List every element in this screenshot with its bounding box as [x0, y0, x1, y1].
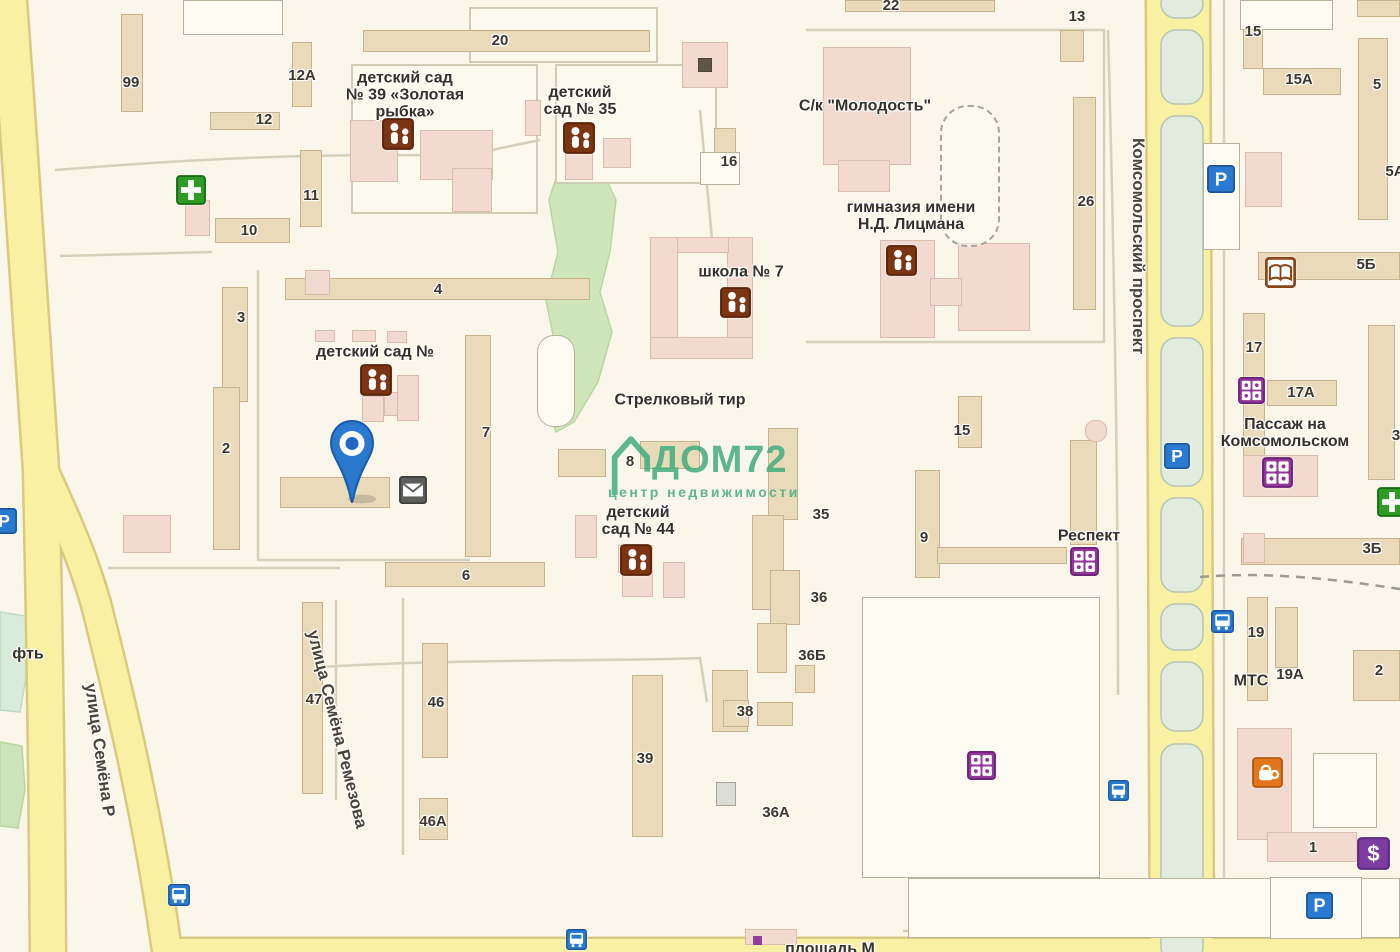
building-number: 36 — [811, 590, 828, 606]
building — [1245, 152, 1282, 207]
building — [1368, 325, 1395, 480]
building — [465, 335, 491, 557]
building-number: 6 — [462, 568, 470, 584]
svg-text:$: $ — [1367, 841, 1379, 866]
school-icon[interactable] — [886, 245, 917, 276]
building-number: 13 — [1069, 9, 1086, 25]
lane-path — [1108, 30, 1118, 695]
building-number: 7 — [482, 425, 490, 441]
lane-path — [1200, 575, 1400, 589]
watermark-subtitle: центр недвижимости — [608, 484, 800, 500]
building-number: 3 — [1392, 428, 1400, 444]
mail-icon[interactable] — [399, 476, 427, 504]
building — [937, 547, 1067, 564]
building-number: 1 — [1309, 840, 1317, 856]
poi-label: Респект — [1058, 527, 1120, 544]
svg-text:P: P — [0, 511, 10, 531]
building — [305, 270, 330, 295]
building-number: 16 — [721, 154, 738, 170]
building-number: 22 — [883, 0, 900, 14]
building — [757, 702, 793, 726]
building-number: 19 — [1248, 625, 1265, 641]
building — [213, 387, 240, 550]
parking-icon[interactable]: P — [1306, 892, 1333, 919]
school-icon[interactable] — [382, 118, 414, 150]
dollar-icon[interactable]: $ — [1357, 837, 1390, 870]
poi-label: детский сад № 44 — [602, 504, 675, 538]
building — [397, 375, 419, 421]
poi-label: С/к "Молодость" — [799, 97, 931, 114]
building — [930, 278, 962, 306]
pharmacy-icon[interactable] — [1377, 487, 1400, 517]
building-number: 99 — [123, 75, 140, 91]
location-pin[interactable] — [328, 418, 376, 511]
building-number: 38 — [737, 704, 754, 720]
building-number: 46 — [428, 695, 445, 711]
shop-icon[interactable] — [967, 751, 996, 780]
building — [452, 168, 492, 212]
building-number: 9 — [920, 530, 928, 546]
pharmacy-icon[interactable] — [176, 175, 206, 205]
poi-label: школа № 7 — [698, 263, 783, 280]
building — [677, 237, 729, 253]
building — [770, 570, 800, 625]
building — [958, 243, 1030, 331]
building — [1358, 38, 1388, 220]
building-number: 19А — [1276, 667, 1304, 683]
building-number: 17 — [1246, 340, 1263, 356]
building — [222, 287, 248, 402]
road-median — [1161, 604, 1203, 650]
poi-label: детский сад № 39 «Золотая рыбка» — [346, 69, 464, 120]
poi-label: детский сад № — [316, 343, 434, 360]
poi-label: МТС — [1234, 672, 1269, 689]
shop-icon[interactable] — [1262, 457, 1293, 488]
poi-label: площадь М — [785, 940, 875, 952]
building — [537, 335, 575, 427]
bus-icon[interactable] — [566, 929, 587, 950]
building-number: 35 — [813, 507, 830, 523]
building-number: 5А — [1385, 164, 1400, 180]
building — [663, 562, 685, 598]
building — [698, 58, 712, 72]
poi-label: гимназия имени Н.Д. Лицмана — [847, 199, 976, 233]
building-number: 2 — [1375, 663, 1383, 679]
building-number: 17А — [1287, 385, 1315, 401]
poi-label: Пассаж на Комсомольском — [1221, 416, 1350, 450]
building — [716, 782, 736, 806]
building — [845, 0, 995, 12]
poi-label: Стрелковый тир — [614, 391, 745, 408]
building-number: 36Б — [798, 648, 825, 664]
building — [1243, 533, 1265, 563]
building-number: 46А — [419, 814, 447, 830]
poi-label: фть — [12, 645, 43, 662]
road-median — [1161, 662, 1203, 731]
building — [795, 665, 815, 693]
school-icon[interactable] — [563, 122, 595, 154]
building-number: 26 — [1078, 194, 1095, 210]
building-number: 15А — [1285, 72, 1313, 88]
building — [714, 128, 736, 154]
building-number: 4 — [434, 282, 442, 298]
building-number: 12 — [256, 112, 273, 128]
book-icon[interactable] — [1265, 257, 1296, 288]
building — [753, 936, 762, 945]
building — [1275, 607, 1298, 668]
building — [183, 0, 283, 35]
building — [121, 14, 143, 112]
school-icon[interactable] — [720, 287, 751, 318]
building — [1085, 420, 1107, 442]
lane-path — [60, 252, 212, 256]
building — [1313, 753, 1377, 828]
building — [558, 449, 606, 477]
svg-text:P: P — [1215, 168, 1227, 189]
school-icon[interactable] — [360, 364, 392, 396]
parking-icon[interactable]: P — [1164, 443, 1190, 469]
coffee-icon[interactable] — [1252, 757, 1283, 788]
building — [185, 200, 210, 236]
building — [387, 331, 407, 343]
building — [575, 515, 597, 558]
building — [603, 138, 631, 168]
building — [525, 100, 541, 136]
parking-icon[interactable]: P — [1207, 165, 1235, 193]
shop-icon[interactable] — [1238, 377, 1265, 404]
building — [352, 330, 376, 342]
building-number: 3 — [237, 310, 245, 326]
building-number: 5Б — [1356, 257, 1375, 273]
street-name: Комсомольский проспект — [1128, 138, 1148, 354]
road-median — [1161, 116, 1203, 326]
map-canvas[interactable]: 9912А1211102022131515А55А5Б16261717А33Б1… — [0, 0, 1400, 952]
building-number: 20 — [492, 33, 509, 49]
building-number: 39 — [637, 751, 654, 767]
building-number: 12А — [288, 68, 316, 84]
road-median — [1161, 0, 1203, 18]
building — [838, 160, 890, 192]
building — [123, 515, 171, 553]
building — [862, 597, 1100, 878]
building-number: 36А — [762, 805, 790, 821]
building — [1060, 30, 1084, 62]
building — [315, 330, 335, 342]
building — [757, 623, 787, 673]
building-number: 2 — [222, 441, 230, 457]
building-number: 3Б — [1362, 541, 1381, 557]
road-median — [1161, 498, 1203, 592]
svg-text:P: P — [1313, 896, 1325, 916]
school-icon[interactable] — [620, 544, 652, 576]
road-median — [1161, 30, 1203, 104]
bus-icon[interactable] — [168, 884, 190, 906]
svg-text:P: P — [1171, 446, 1183, 466]
shop-icon[interactable] — [1070, 547, 1099, 576]
building — [1357, 0, 1400, 17]
building — [650, 337, 753, 359]
green-area — [0, 742, 25, 828]
building-number: 15 — [1245, 24, 1262, 40]
poi-label: детский сад № 35 — [544, 84, 617, 118]
building — [1203, 143, 1240, 250]
watermark-title: ДОМ72 — [652, 439, 788, 482]
building-number: 5 — [1373, 77, 1381, 93]
bus-icon[interactable] — [1108, 780, 1129, 801]
building-number: 10 — [241, 223, 258, 239]
parking-icon[interactable]: P — [0, 508, 17, 534]
bus-icon[interactable] — [1211, 610, 1234, 633]
building-number: 11 — [303, 188, 319, 204]
building-number: 15 — [954, 423, 971, 439]
